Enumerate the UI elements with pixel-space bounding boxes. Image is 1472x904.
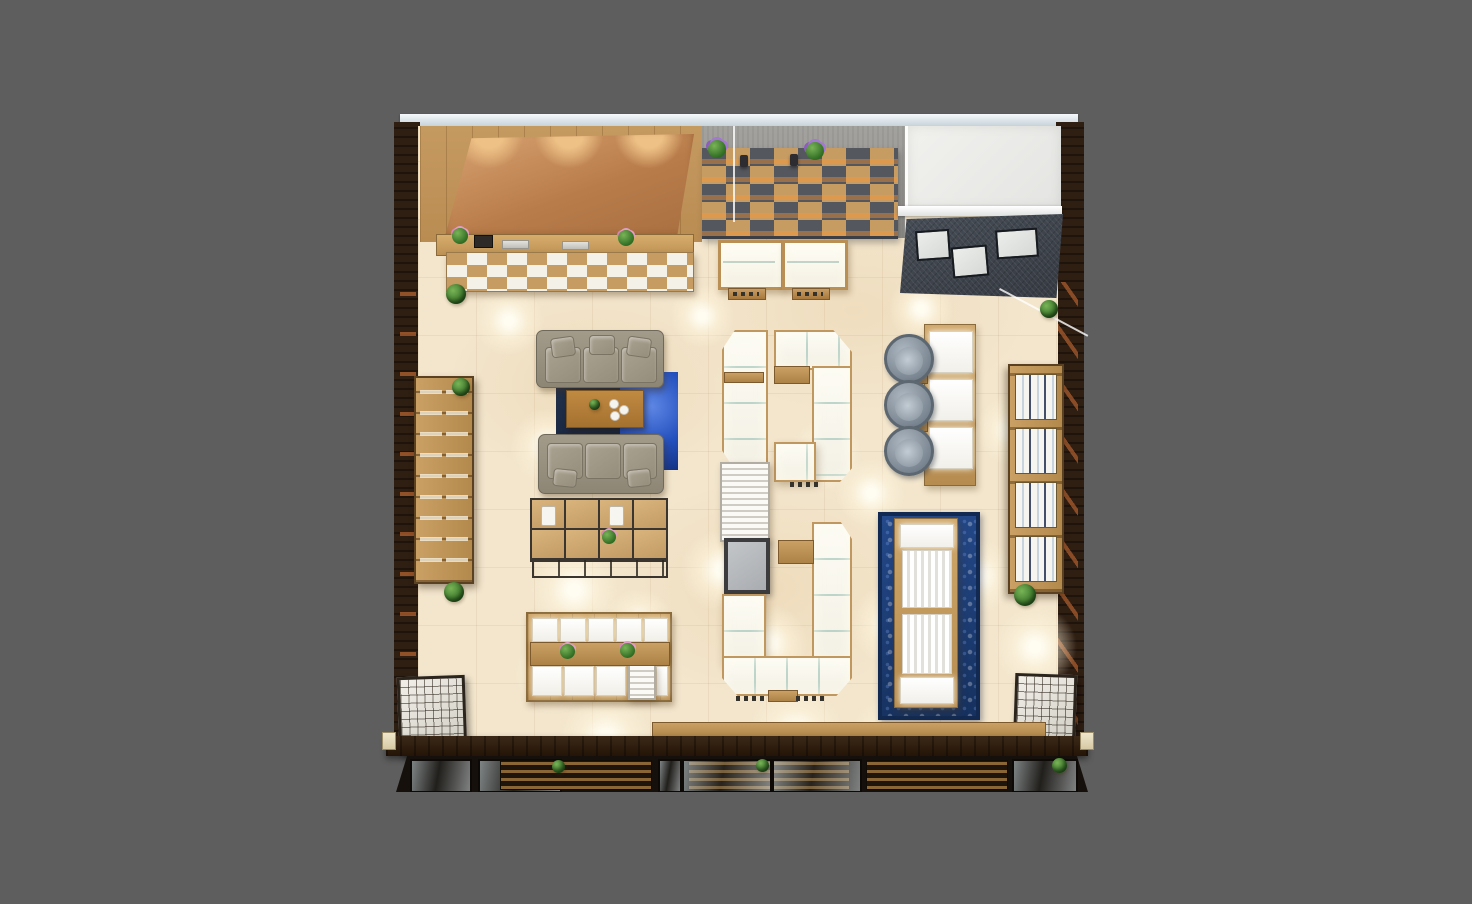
sofa-pillow — [550, 335, 577, 358]
counter-island-arm — [774, 442, 816, 482]
glass-display-case — [782, 240, 848, 290]
reception-plant — [618, 230, 634, 246]
fitting-chair — [884, 426, 934, 476]
room-wall-beam — [898, 206, 1062, 216]
top-wall-edge — [400, 114, 1078, 126]
cube-merch — [609, 506, 624, 526]
platform-cap — [900, 524, 954, 548]
light-reflection — [474, 286, 544, 356]
slat-tower — [720, 462, 770, 542]
fitting-table-top — [929, 331, 973, 373]
counter-island-column — [812, 366, 852, 482]
entry-door-glass — [772, 759, 862, 793]
platform-tray — [902, 614, 952, 674]
counter-island-column — [812, 522, 852, 664]
fitting-table-top — [929, 379, 973, 421]
sofa-cushion — [585, 443, 621, 479]
skylight-panel — [995, 228, 1039, 260]
display-cube — [530, 498, 566, 532]
sloped-roof-canopy — [900, 214, 1063, 298]
display-platform — [894, 518, 958, 708]
island-vent — [796, 696, 824, 701]
light-panel — [644, 618, 668, 642]
shelf-plant-purple — [806, 142, 824, 160]
bench-vent — [797, 292, 823, 296]
shelf-plant-purple — [708, 140, 726, 158]
shelf-merchandise — [446, 382, 468, 576]
case-bench — [728, 288, 766, 300]
floor-mirror — [724, 538, 770, 594]
tea-cup — [610, 411, 620, 421]
platform-tray — [902, 550, 952, 608]
light-panel — [560, 618, 586, 642]
cube-plant — [602, 530, 616, 544]
step-shelf — [628, 664, 656, 700]
case-bench — [792, 288, 830, 300]
facade-corner-block — [382, 732, 396, 750]
copper-feature-wall — [444, 134, 694, 240]
display-cube — [564, 528, 600, 562]
display-table — [526, 612, 672, 702]
shelf-merchandise — [1015, 536, 1057, 582]
reception-plant — [452, 228, 468, 244]
sofa-pillow — [626, 335, 653, 358]
tea-cup — [609, 399, 619, 409]
glass-display-case — [718, 240, 784, 290]
reception-counter-front — [446, 252, 694, 292]
table-plant — [589, 399, 600, 410]
sofa-pillow — [552, 468, 578, 488]
display-cube — [530, 528, 566, 562]
display-cube — [632, 528, 668, 562]
shelf-merchandise — [420, 382, 442, 576]
window-shelf-slats — [866, 760, 1008, 790]
case-glass-line — [723, 261, 775, 263]
sofa — [538, 434, 664, 494]
runner-plant — [560, 644, 575, 659]
display-cube — [564, 498, 600, 532]
light-panel — [532, 666, 562, 696]
glass-pane — [410, 759, 472, 793]
shelf-top-plant — [452, 378, 470, 396]
reception-monitor — [474, 235, 493, 248]
island-wood-joint — [774, 366, 810, 384]
island-vent — [790, 482, 818, 487]
display-cube — [632, 498, 668, 532]
cube-merch — [541, 506, 556, 526]
table-runner — [530, 642, 670, 666]
floorplan-render — [0, 0, 1472, 904]
window-plant — [552, 760, 565, 773]
glass-pane — [1012, 759, 1078, 793]
wall-plant — [1040, 300, 1058, 318]
island-wood-joint — [778, 540, 814, 564]
island-wood-band — [724, 372, 764, 383]
fitting-chair — [884, 380, 934, 430]
light-panel — [616, 618, 642, 642]
counter-island-column — [722, 594, 766, 664]
window-plant — [1052, 758, 1067, 773]
island-step — [768, 690, 798, 702]
pendant-wire — [733, 126, 735, 222]
light-panel — [656, 666, 668, 696]
case-glass-line — [787, 261, 839, 263]
window-plant — [756, 759, 769, 772]
shelf-merchandise — [1015, 374, 1057, 420]
checkerboard-shelf-wall — [702, 148, 898, 239]
shelf-lamp — [740, 155, 748, 167]
light-panel — [596, 666, 626, 696]
wall-plant — [446, 284, 466, 304]
left-display-shelf — [414, 376, 474, 584]
sofa-pillow — [626, 468, 652, 488]
cube-drawers — [532, 558, 668, 578]
bench-vent — [733, 292, 759, 296]
shelf-merchandise — [1015, 482, 1057, 528]
platform-cap — [900, 677, 954, 704]
window-shelf-slats — [500, 760, 652, 790]
skylight-panel — [951, 244, 990, 278]
storefront-glass — [396, 756, 1088, 792]
light-reflection — [670, 284, 734, 348]
counter-tray — [562, 241, 589, 250]
wall-plant — [1014, 584, 1036, 606]
fitting-table-top — [929, 427, 973, 469]
shelf-merchandise — [1015, 428, 1057, 474]
sofa — [536, 330, 664, 388]
glass-pane — [658, 759, 682, 793]
runner-plant — [620, 643, 635, 658]
tea-cup — [619, 405, 629, 415]
right-display-shelf — [1008, 364, 1064, 594]
light-panel — [564, 666, 594, 696]
counter-island-bar — [722, 330, 768, 470]
counter-tray — [502, 240, 529, 249]
island-vent — [736, 696, 764, 701]
facade-corner-block — [1080, 732, 1094, 750]
light-panel — [588, 618, 614, 642]
light-panel — [532, 618, 558, 642]
shelf-lamp — [790, 154, 798, 166]
coffee-table — [566, 390, 644, 428]
fitting-chair — [884, 334, 934, 384]
display-cube — [598, 498, 634, 532]
back-room — [905, 126, 1061, 208]
sofa-pillow — [589, 335, 615, 355]
storefront-wall-band — [386, 736, 1088, 756]
display-cube-block — [530, 498, 666, 574]
wall-plant — [444, 582, 464, 602]
skylight-panel — [915, 229, 951, 261]
